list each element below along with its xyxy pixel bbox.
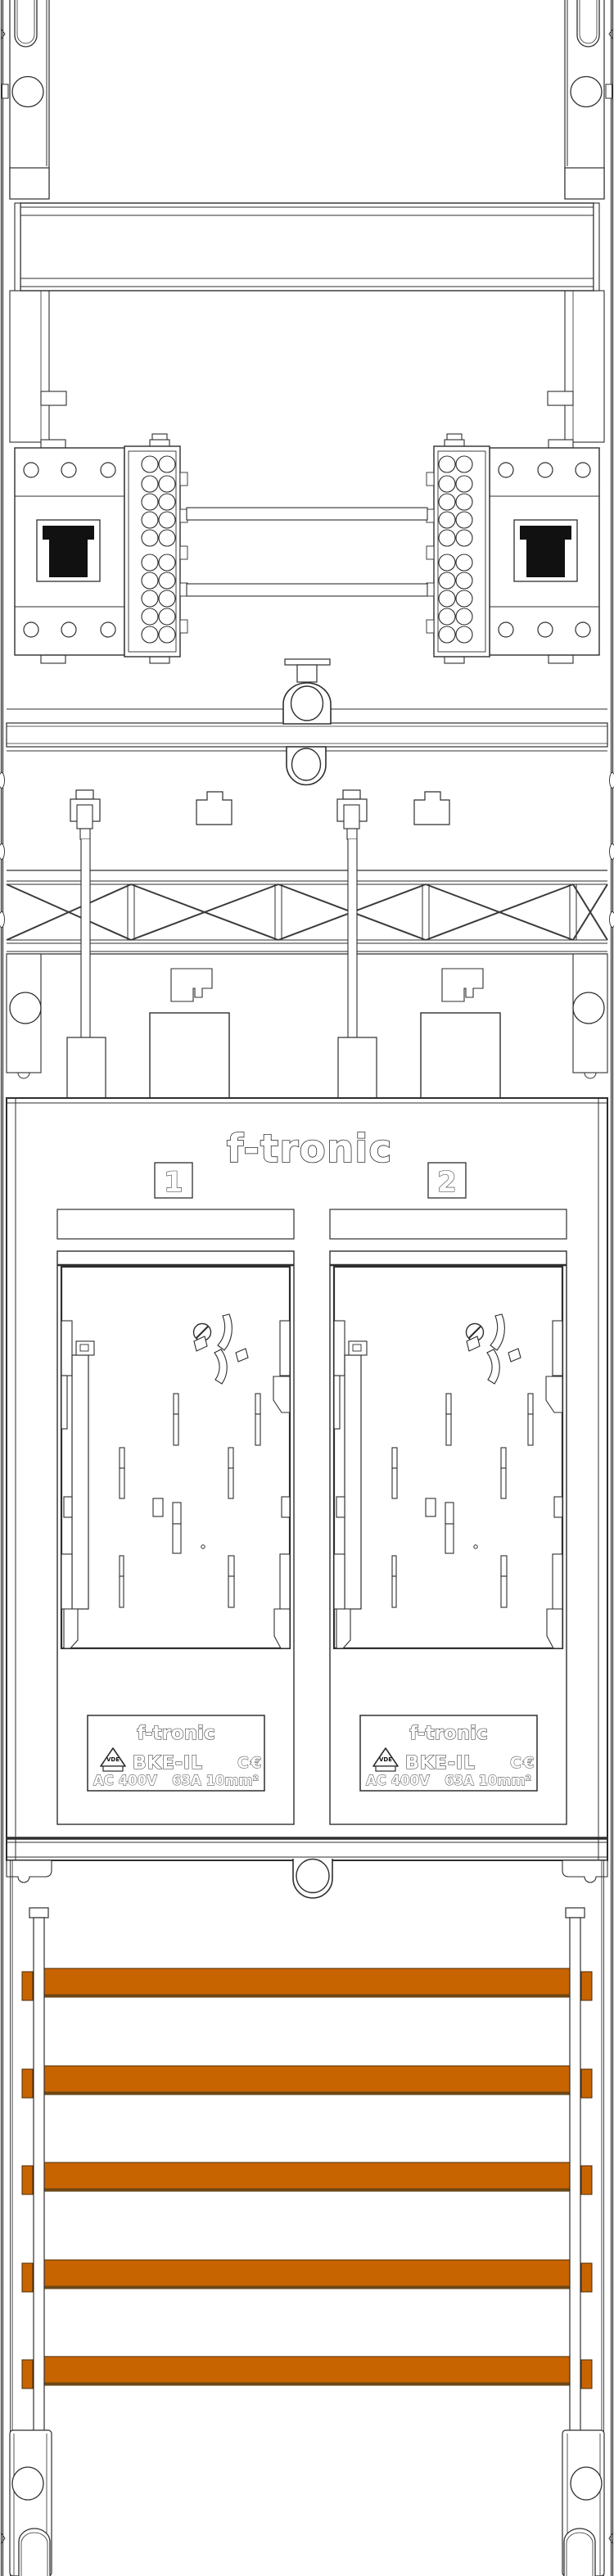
- main-terminal-right: [427, 434, 599, 663]
- meter-seat-group-2: [338, 969, 500, 1098]
- ce-mark-icon: C€: [237, 1754, 263, 1772]
- control-wire-jack-1: [196, 792, 232, 825]
- control-wire-plug-2: [337, 790, 367, 839]
- side-band-left: [7, 954, 41, 1078]
- vde-triangle-icon: VDE: [379, 1756, 392, 1763]
- busbar: [22, 1972, 33, 2000]
- side-band-right: [573, 954, 607, 1078]
- label1-brand: f-tronic: [137, 1723, 214, 1744]
- meter-position-label-1: 1: [164, 1166, 183, 1199]
- divider-bracket-left: [7, 1860, 52, 1882]
- center-cable-clamp-bottom: [293, 1859, 332, 1898]
- label1-cross-section: 10mm²: [205, 1773, 259, 1788]
- busbar: [34, 2066, 580, 2095]
- busbar: [34, 1968, 580, 1997]
- label2-brand: f-tronic: [409, 1723, 487, 1744]
- meter-position-label-2: 2: [437, 1166, 457, 1199]
- terminal-connecting-rails: [187, 508, 427, 596]
- control-wire-jack-2: [414, 792, 449, 825]
- bottom-mounting-column-left: [1, 2430, 52, 2576]
- busbar: [35, 2189, 579, 2192]
- meter-seat-group-1: [67, 969, 229, 1098]
- meter-cabinet-drawing: f-tronic 1 2 f-tronic VDE BKE-IL C€ AC 4…: [0, 0, 614, 2576]
- control-wire-plug-1: [70, 790, 100, 839]
- name-strip-2: [330, 1209, 567, 1239]
- name-strip-1: [57, 1209, 294, 1239]
- meter-position-box-2: 2: [428, 1163, 466, 1199]
- busbar: [581, 2360, 592, 2388]
- busbar: [22, 2360, 33, 2388]
- busbar: [34, 2357, 580, 2385]
- main-terminal-left: [15, 434, 187, 663]
- busbar: [22, 2263, 33, 2292]
- busbar: [22, 2166, 33, 2194]
- busbar: [22, 2069, 33, 2098]
- divider-bracket-right: [562, 1860, 607, 1882]
- control-cables: [81, 839, 357, 1038]
- busbar-set: [22, 1968, 592, 2388]
- busbar: [581, 1972, 592, 2000]
- meter-position-box-1: 1: [155, 1163, 192, 1199]
- center-cable-clamp-top: [283, 659, 331, 785]
- busbar: [35, 2092, 579, 2095]
- label1-current: 63A: [172, 1773, 201, 1788]
- busbar: [35, 1995, 579, 1998]
- label2-current: 63A: [445, 1773, 474, 1788]
- label2-voltage: AC 400V: [366, 1773, 430, 1788]
- lattice-brace: [7, 870, 607, 954]
- bottom-mounting-column-right: [562, 2430, 613, 2576]
- busbar: [581, 2263, 592, 2292]
- busbar: [35, 2383, 579, 2386]
- ce-mark-icon: C€: [510, 1754, 535, 1772]
- busbar: [34, 2162, 580, 2191]
- busbar: [35, 2286, 579, 2289]
- label2-cross-section: 10mm²: [478, 1773, 531, 1788]
- brand-title: f-tronic: [227, 1127, 393, 1172]
- label1-model: BKE-IL: [133, 1753, 203, 1774]
- upper-cross-rail: [15, 203, 599, 291]
- busbar: [581, 2166, 592, 2194]
- busbar: [581, 2069, 592, 2098]
- label2-model: BKE-IL: [405, 1753, 476, 1774]
- vde-triangle-icon: VDE: [106, 1756, 120, 1763]
- label1-voltage: AC 400V: [93, 1773, 157, 1788]
- busbar-cage-frame: [11, 1860, 604, 2576]
- busbar: [34, 2260, 580, 2289]
